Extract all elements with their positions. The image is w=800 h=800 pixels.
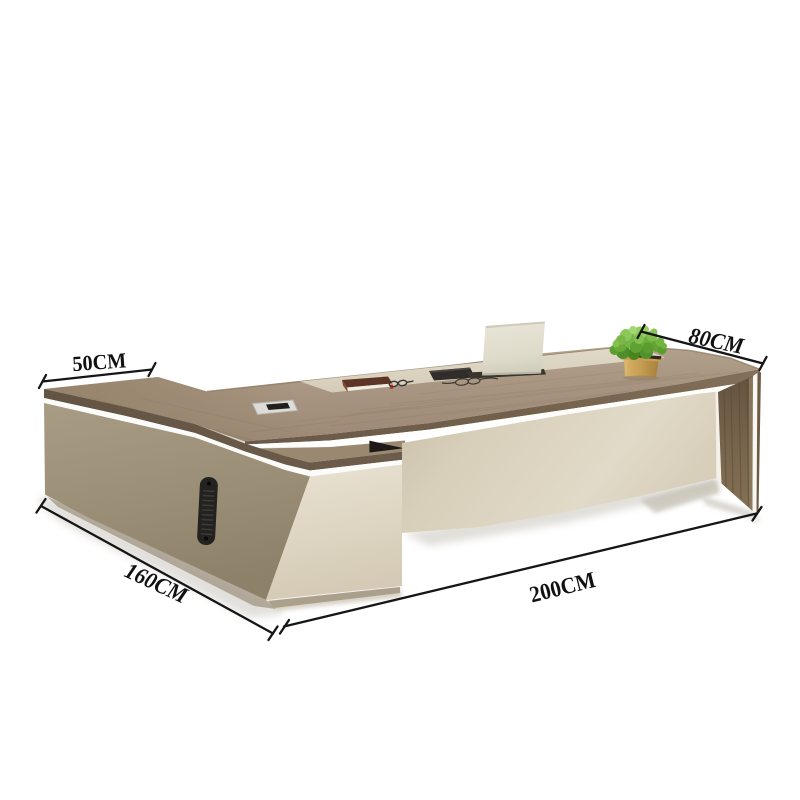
- svg-text:50CM: 50CM: [72, 348, 128, 376]
- svg-text:200CM: 200CM: [527, 566, 598, 607]
